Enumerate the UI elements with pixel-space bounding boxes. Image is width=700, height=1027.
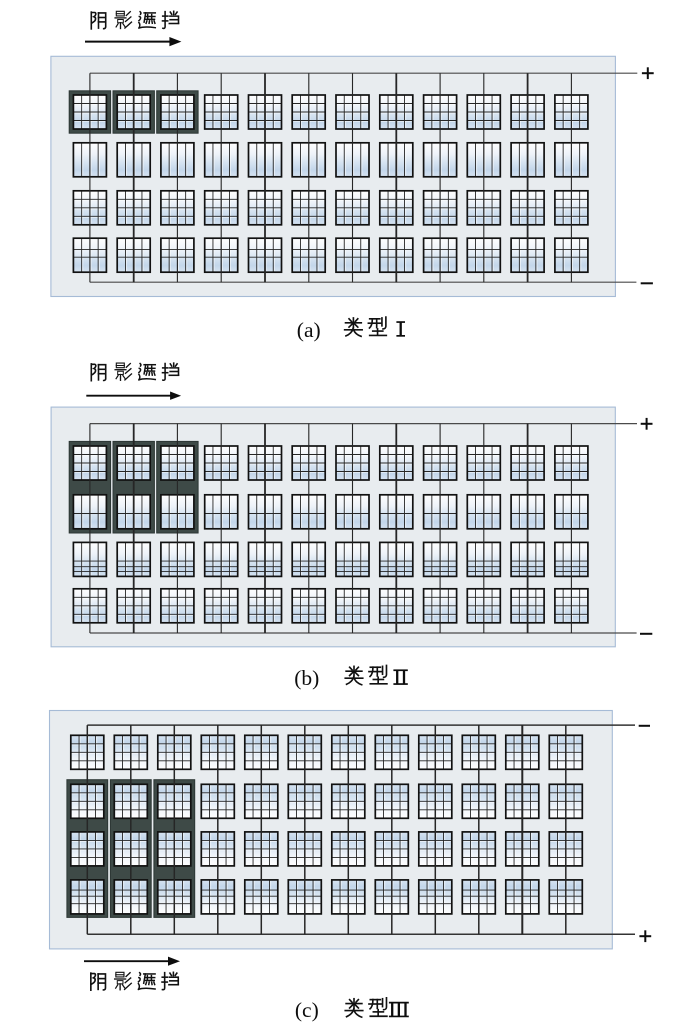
svg-text:(a): (a) xyxy=(297,318,321,342)
svg-text:(c): (c) xyxy=(295,998,319,1022)
svg-text:(b): (b) xyxy=(294,666,319,690)
